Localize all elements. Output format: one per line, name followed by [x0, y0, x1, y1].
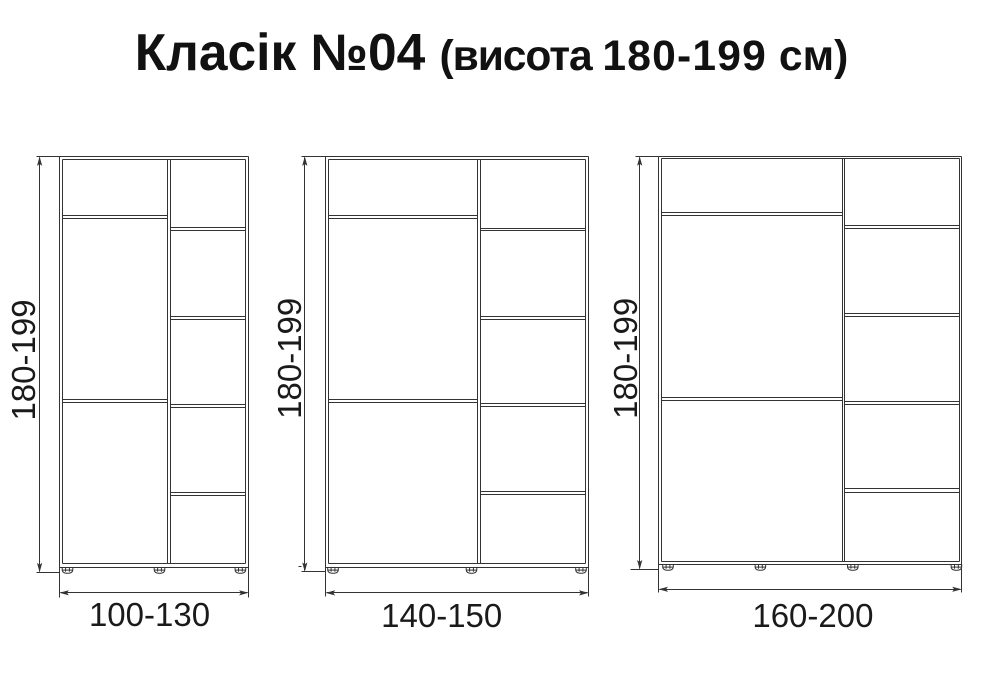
- svg-text:100-130: 100-130: [89, 596, 210, 633]
- svg-text:180-199: 180-199: [607, 298, 644, 419]
- svg-text:180-199: 180-199: [5, 299, 42, 420]
- svg-text:160-200: 160-200: [752, 597, 873, 634]
- svg-text:Класік №04 (висота 180-199 см): Класік №04 (висота 180-199 см): [135, 23, 849, 81]
- svg-text:140-150: 140-150: [381, 597, 502, 634]
- svg-text:180-199: 180-199: [271, 298, 308, 419]
